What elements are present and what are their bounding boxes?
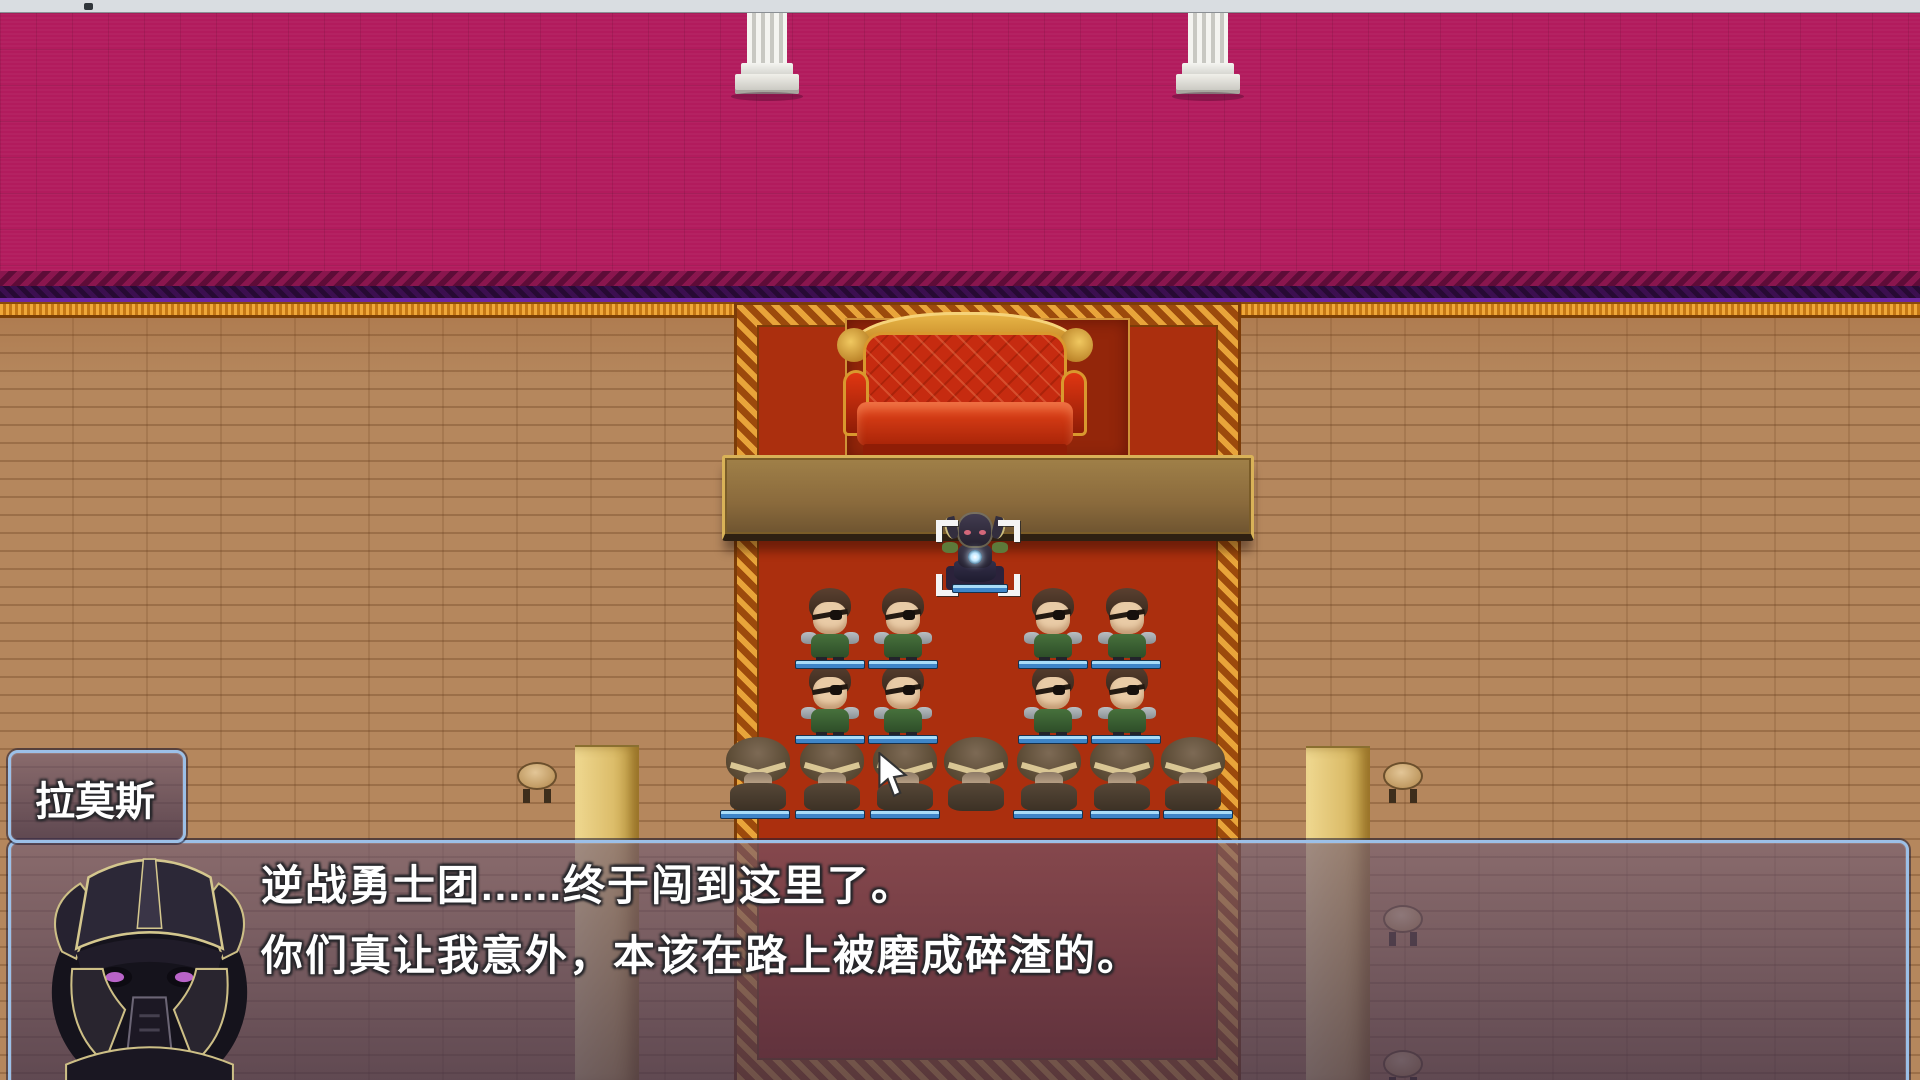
hp-gauge [1091,735,1161,744]
selection-brackets-c2 [998,520,1020,542]
hp-gauge [868,660,938,669]
game-screen: 逆战勇士团......终于闯到这里了。 你们真让我意外，本该在路上被磨成碎渣的。… [0,0,1920,1080]
soldier-npc[interactable] [797,663,863,741]
soldier-npc-patch [830,610,842,620]
hp-gauge [1013,810,1083,819]
soldier-npc[interactable] [1094,588,1160,666]
speaker-name: 拉莫斯 [11,753,155,827]
hp-gauge [1163,810,1233,819]
soldier-npc-torso [811,634,849,658]
hp-gauge [1091,660,1161,669]
hooded-mage-npc-robe [1021,783,1077,811]
stone-pillar-pshadow [1172,92,1244,101]
hp-gauge [795,735,865,744]
stone-pillar-base [735,74,799,94]
hooded-mage-npc[interactable] [1013,737,1085,811]
wooden-stool-slegL [1389,789,1396,803]
soldier-npc[interactable] [797,588,863,666]
window-edge-mark [84,3,93,10]
mouse-cursor-icon [876,752,910,798]
soldier-npc-patch [1127,610,1139,620]
wall-baseboard [0,286,1920,302]
hooded-mage-npc[interactable] [940,737,1012,811]
soldier-npc[interactable] [1020,588,1086,666]
hp-gauge [795,810,865,819]
soldier-npc-patch [903,685,915,695]
wooden-stool-slegL [523,789,530,803]
soldier-npc-torso [884,709,922,733]
throne-sofa[interactable] [835,306,1095,466]
soldier-npc-patch [1127,685,1139,695]
throne-room-wall [0,13,1920,271]
boss-portrait [47,855,252,1080]
hooded-mage-npc[interactable] [1086,737,1158,811]
hooded-mage-npc-robe [1165,783,1221,811]
hooded-mage-npc-robe [730,783,786,811]
stone-pillar [1176,13,1240,103]
soldier-npc-patch [1053,685,1065,695]
hooded-mage-npc-robe [948,783,1004,811]
window-edge-bar [0,0,1920,13]
stone-pillar [735,13,799,103]
soldier-npc-torso [1108,709,1146,733]
stone-pillar-base [1176,74,1240,94]
wooden-stool [515,760,559,808]
wooden-stool-slegR [1410,789,1417,803]
sofa-seat [857,402,1073,446]
wooden-stool [1381,760,1425,808]
soldier-npc[interactable] [1020,663,1086,741]
soldier-npc[interactable] [870,588,936,666]
hp-gauge [1018,735,1088,744]
message-window[interactable]: 逆战勇士团......终于闯到这里了。 你们真让我意外，本该在路上被磨成碎渣的。 [8,840,1909,1080]
stone-pillar-pshadow [731,92,803,101]
soldier-npc-patch [1053,610,1065,620]
hooded-mage-npc[interactable] [722,737,794,811]
soldier-npc-patch [830,685,842,695]
soldier-npc-torso [884,634,922,658]
hooded-mage-npc-robe [1094,783,1150,811]
soldier-npc[interactable] [1094,663,1160,741]
stone-pillar-shaft [747,13,787,67]
boss-hp-gauge [952,584,1008,593]
hooded-mage-npc[interactable] [1157,737,1229,811]
wall-pattern-band [0,271,1920,286]
hp-gauge [795,660,865,669]
dialog-text-line-2: 你们真让我意外，本该在路上被磨成碎渣的。 [261,923,1761,989]
selection-brackets-c1 [936,520,958,542]
hp-gauge [720,810,790,819]
soldier-npc-patch [903,610,915,620]
hp-gauge [870,810,940,819]
wooden-stool-stop [1383,762,1423,790]
speaker-name-box: 拉莫斯 [8,750,186,843]
wooden-stool-stop [517,762,557,790]
hp-gauge [1018,660,1088,669]
soldier-npc-torso [1108,634,1146,658]
soldier-npc[interactable] [870,663,936,741]
wooden-stool-slegR [544,789,551,803]
soldier-npc-torso [1034,709,1072,733]
stone-pillar-shaft [1188,13,1228,67]
hp-gauge [868,735,938,744]
soldier-npc-torso [1034,634,1072,658]
dialog-text-line-1: 逆战勇士团......终于闯到这里了。 [261,853,1761,919]
soldier-npc-torso [811,709,849,733]
hooded-mage-npc[interactable] [796,737,868,811]
hooded-mage-npc-robe [804,783,860,811]
hp-gauge [1090,810,1160,819]
